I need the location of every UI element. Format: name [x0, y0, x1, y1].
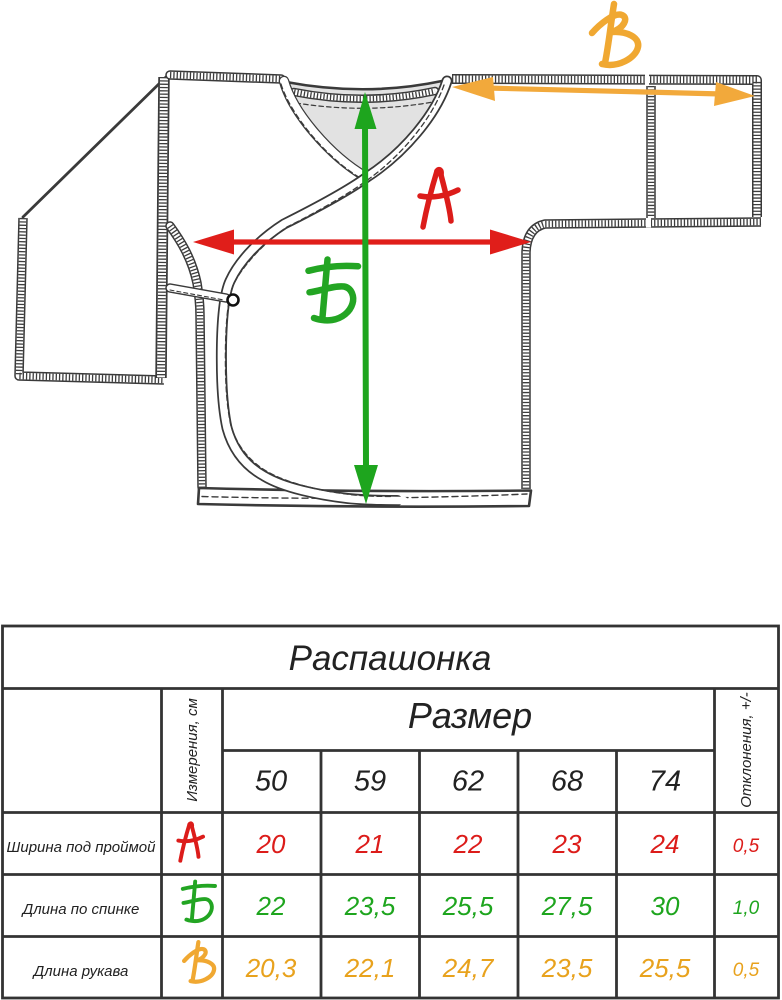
svg-text:Размер: Размер	[408, 695, 532, 736]
svg-text:0,5: 0,5	[733, 836, 760, 857]
svg-text:Отклонения, +/-: Отклонения, +/-	[738, 692, 755, 808]
svg-text:1,0: 1,0	[733, 898, 760, 919]
svg-text:25,5: 25,5	[639, 953, 691, 983]
svg-text:68: 68	[551, 766, 583, 798]
svg-text:20: 20	[256, 829, 286, 859]
svg-text:74: 74	[649, 766, 681, 798]
svg-text:23: 23	[552, 829, 582, 859]
svg-text:Длина по спинке: Длина по спинке	[21, 901, 140, 918]
svg-text:23,5: 23,5	[541, 953, 593, 983]
svg-text:Распашонка: Распашонка	[289, 639, 492, 678]
svg-text:Измерения, см: Измерения, см	[184, 698, 201, 802]
svg-text:24,7: 24,7	[442, 953, 495, 983]
svg-text:50: 50	[255, 766, 287, 798]
svg-text:Ширина под проймой: Ширина под проймой	[7, 839, 157, 856]
svg-text:25,5: 25,5	[442, 891, 494, 921]
svg-text:62: 62	[452, 766, 484, 798]
svg-text:23,5: 23,5	[344, 891, 396, 921]
svg-text:59: 59	[354, 766, 386, 798]
svg-text:27,5: 27,5	[541, 891, 593, 921]
svg-text:21: 21	[355, 829, 385, 859]
svg-text:Длина рукава: Длина рукава	[32, 963, 129, 980]
svg-text:22: 22	[453, 829, 483, 859]
svg-text:24: 24	[650, 829, 680, 859]
svg-text:30: 30	[651, 891, 680, 921]
svg-text:0,5: 0,5	[733, 960, 760, 981]
svg-text:22,1: 22,1	[344, 953, 396, 983]
svg-text:20,3: 20,3	[245, 953, 297, 983]
svg-text:22: 22	[256, 891, 286, 921]
